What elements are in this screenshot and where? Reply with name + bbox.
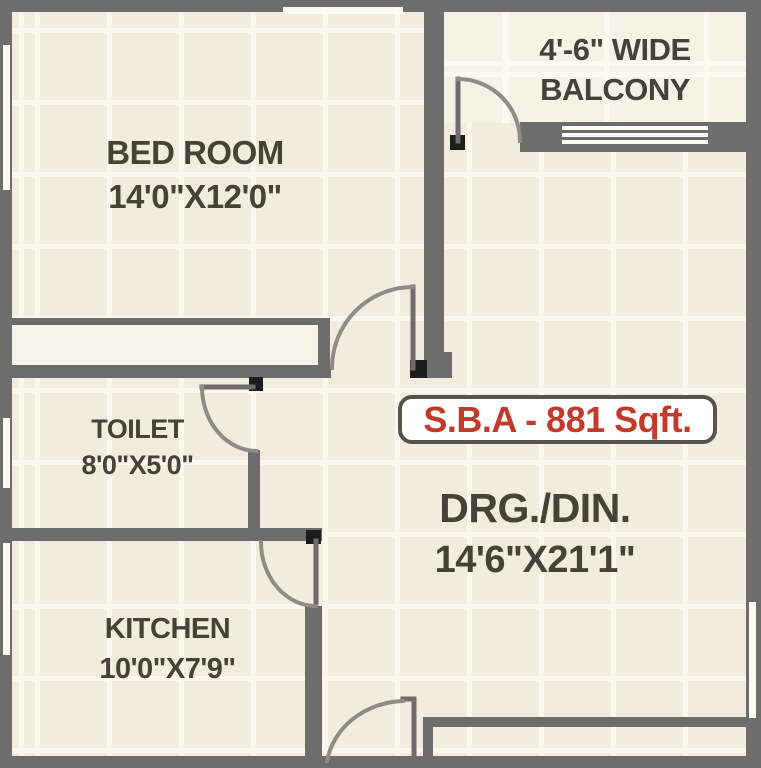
wall-toilet-kitchen bbox=[0, 528, 322, 541]
toilet-door-hinge bbox=[249, 377, 263, 391]
drg-din-label: DRG./DIN. 14'6"X21'1" bbox=[390, 482, 680, 586]
kitchen-dims: 10'0"X7'9" bbox=[40, 649, 295, 689]
area-badge: S.B.A - 881 Sqft. bbox=[398, 395, 717, 444]
window-balcony-line1 bbox=[562, 126, 708, 130]
wall-toilet-right bbox=[248, 450, 260, 540]
wall-rear-balcony-top bbox=[423, 717, 746, 727]
toilet-label: TOILET 8'0"X5'0" bbox=[30, 411, 245, 483]
balcony-label: 4'-6" WIDE BALCONY bbox=[475, 30, 755, 110]
wall-rear-balcony-left bbox=[423, 717, 433, 768]
bedroom-label: BED ROOM 14'0"X12'0" bbox=[55, 131, 335, 219]
window-kitchen-left bbox=[3, 543, 10, 655]
balcony-door-hinge bbox=[450, 135, 465, 150]
window-bedroom-top bbox=[283, 7, 403, 14]
wall-divider-foot bbox=[424, 352, 452, 378]
kitchen-name: KITCHEN bbox=[40, 609, 295, 649]
balcony-width-note: 4'-6" WIDE bbox=[475, 30, 755, 70]
kitchen-label: KITCHEN 10'0"X7'9" bbox=[40, 609, 295, 689]
bedroom-wardrobe bbox=[11, 318, 330, 366]
wall-bedroom-divider bbox=[424, 0, 444, 378]
wall-outer-bottom bbox=[0, 756, 761, 768]
drg-din-dims: 14'6"X21'1" bbox=[390, 534, 680, 586]
area-badge-text: S.B.A - 881 Sqft. bbox=[402, 399, 713, 440]
toilet-dims: 8'0"X5'0" bbox=[30, 447, 245, 483]
window-bedroom-left bbox=[3, 45, 10, 190]
toilet-name: TOILET bbox=[30, 411, 245, 447]
window-toilet-left bbox=[3, 418, 10, 488]
wall-kitchen-right bbox=[305, 606, 322, 768]
bedroom-name: BED ROOM bbox=[55, 131, 335, 175]
floor-plan: BED ROOM 14'0"X12'0" 4'-6" WIDE BALCONY … bbox=[0, 0, 761, 768]
window-balcony-line3 bbox=[562, 140, 708, 144]
bedroom-door-hinge bbox=[410, 360, 427, 378]
window-drg-right bbox=[749, 602, 756, 718]
bedroom-dims: 14'0"X12'0" bbox=[55, 175, 335, 219]
balcony-name: BALCONY bbox=[475, 70, 755, 110]
wall-bedroom-bottom bbox=[0, 365, 331, 378]
kitchen-door-hinge bbox=[306, 530, 321, 544]
window-balcony-line2 bbox=[562, 133, 708, 137]
drg-din-name: DRG./DIN. bbox=[390, 482, 680, 534]
